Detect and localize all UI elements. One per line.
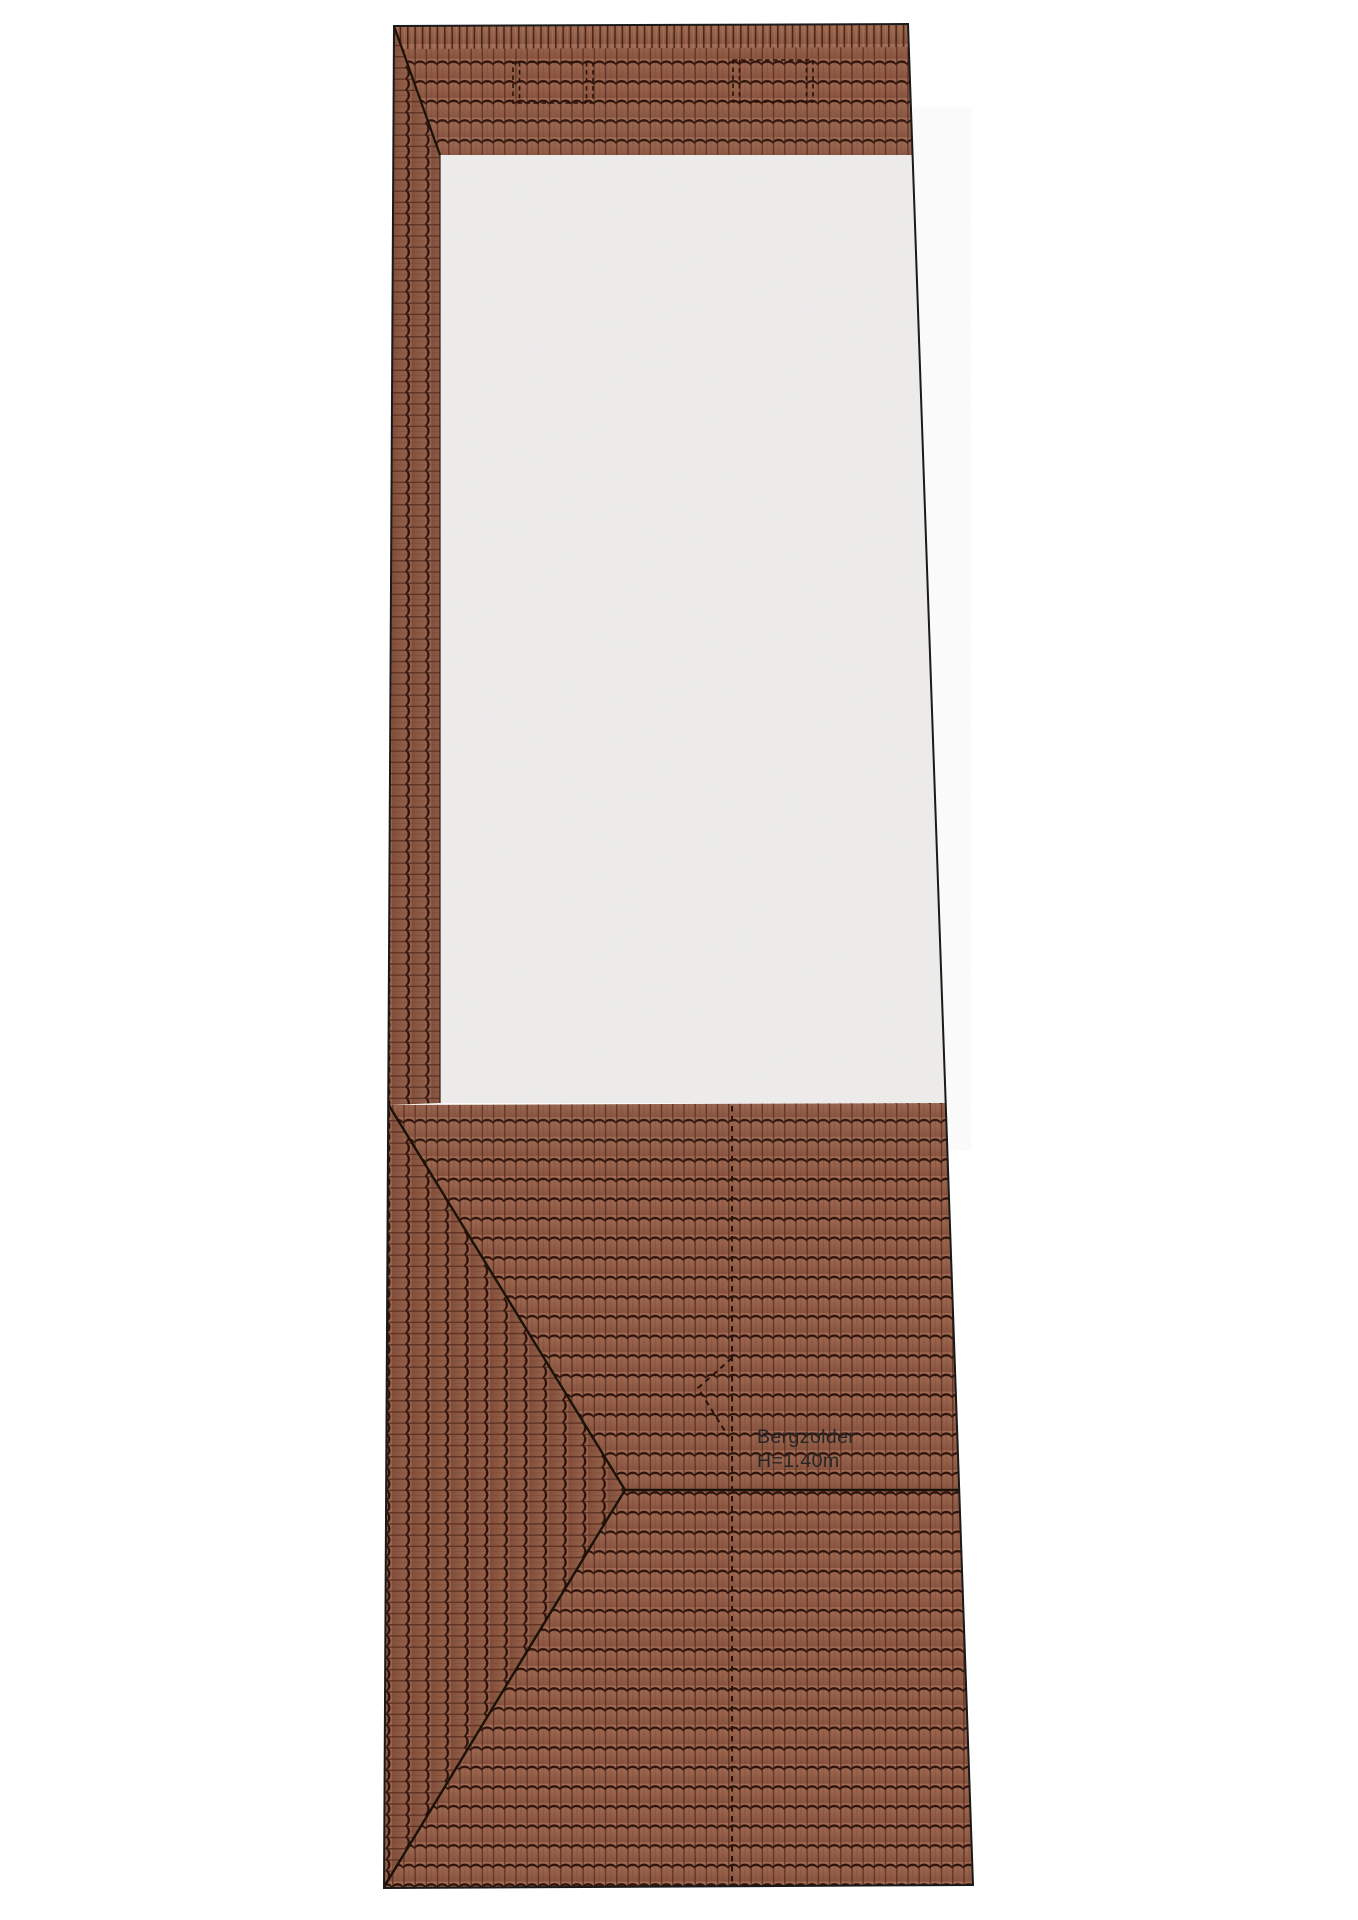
ridge-cap-row xyxy=(394,24,909,49)
height-label: H=1.40m xyxy=(757,1450,839,1472)
bergzolder-label: Bergzolder xyxy=(757,1426,855,1448)
roof-plan: Bergzolder H=1.40m xyxy=(0,0,1358,1920)
page: Bergzolder H=1.40m xyxy=(0,0,1358,1920)
flat-roof-area xyxy=(440,155,946,1103)
